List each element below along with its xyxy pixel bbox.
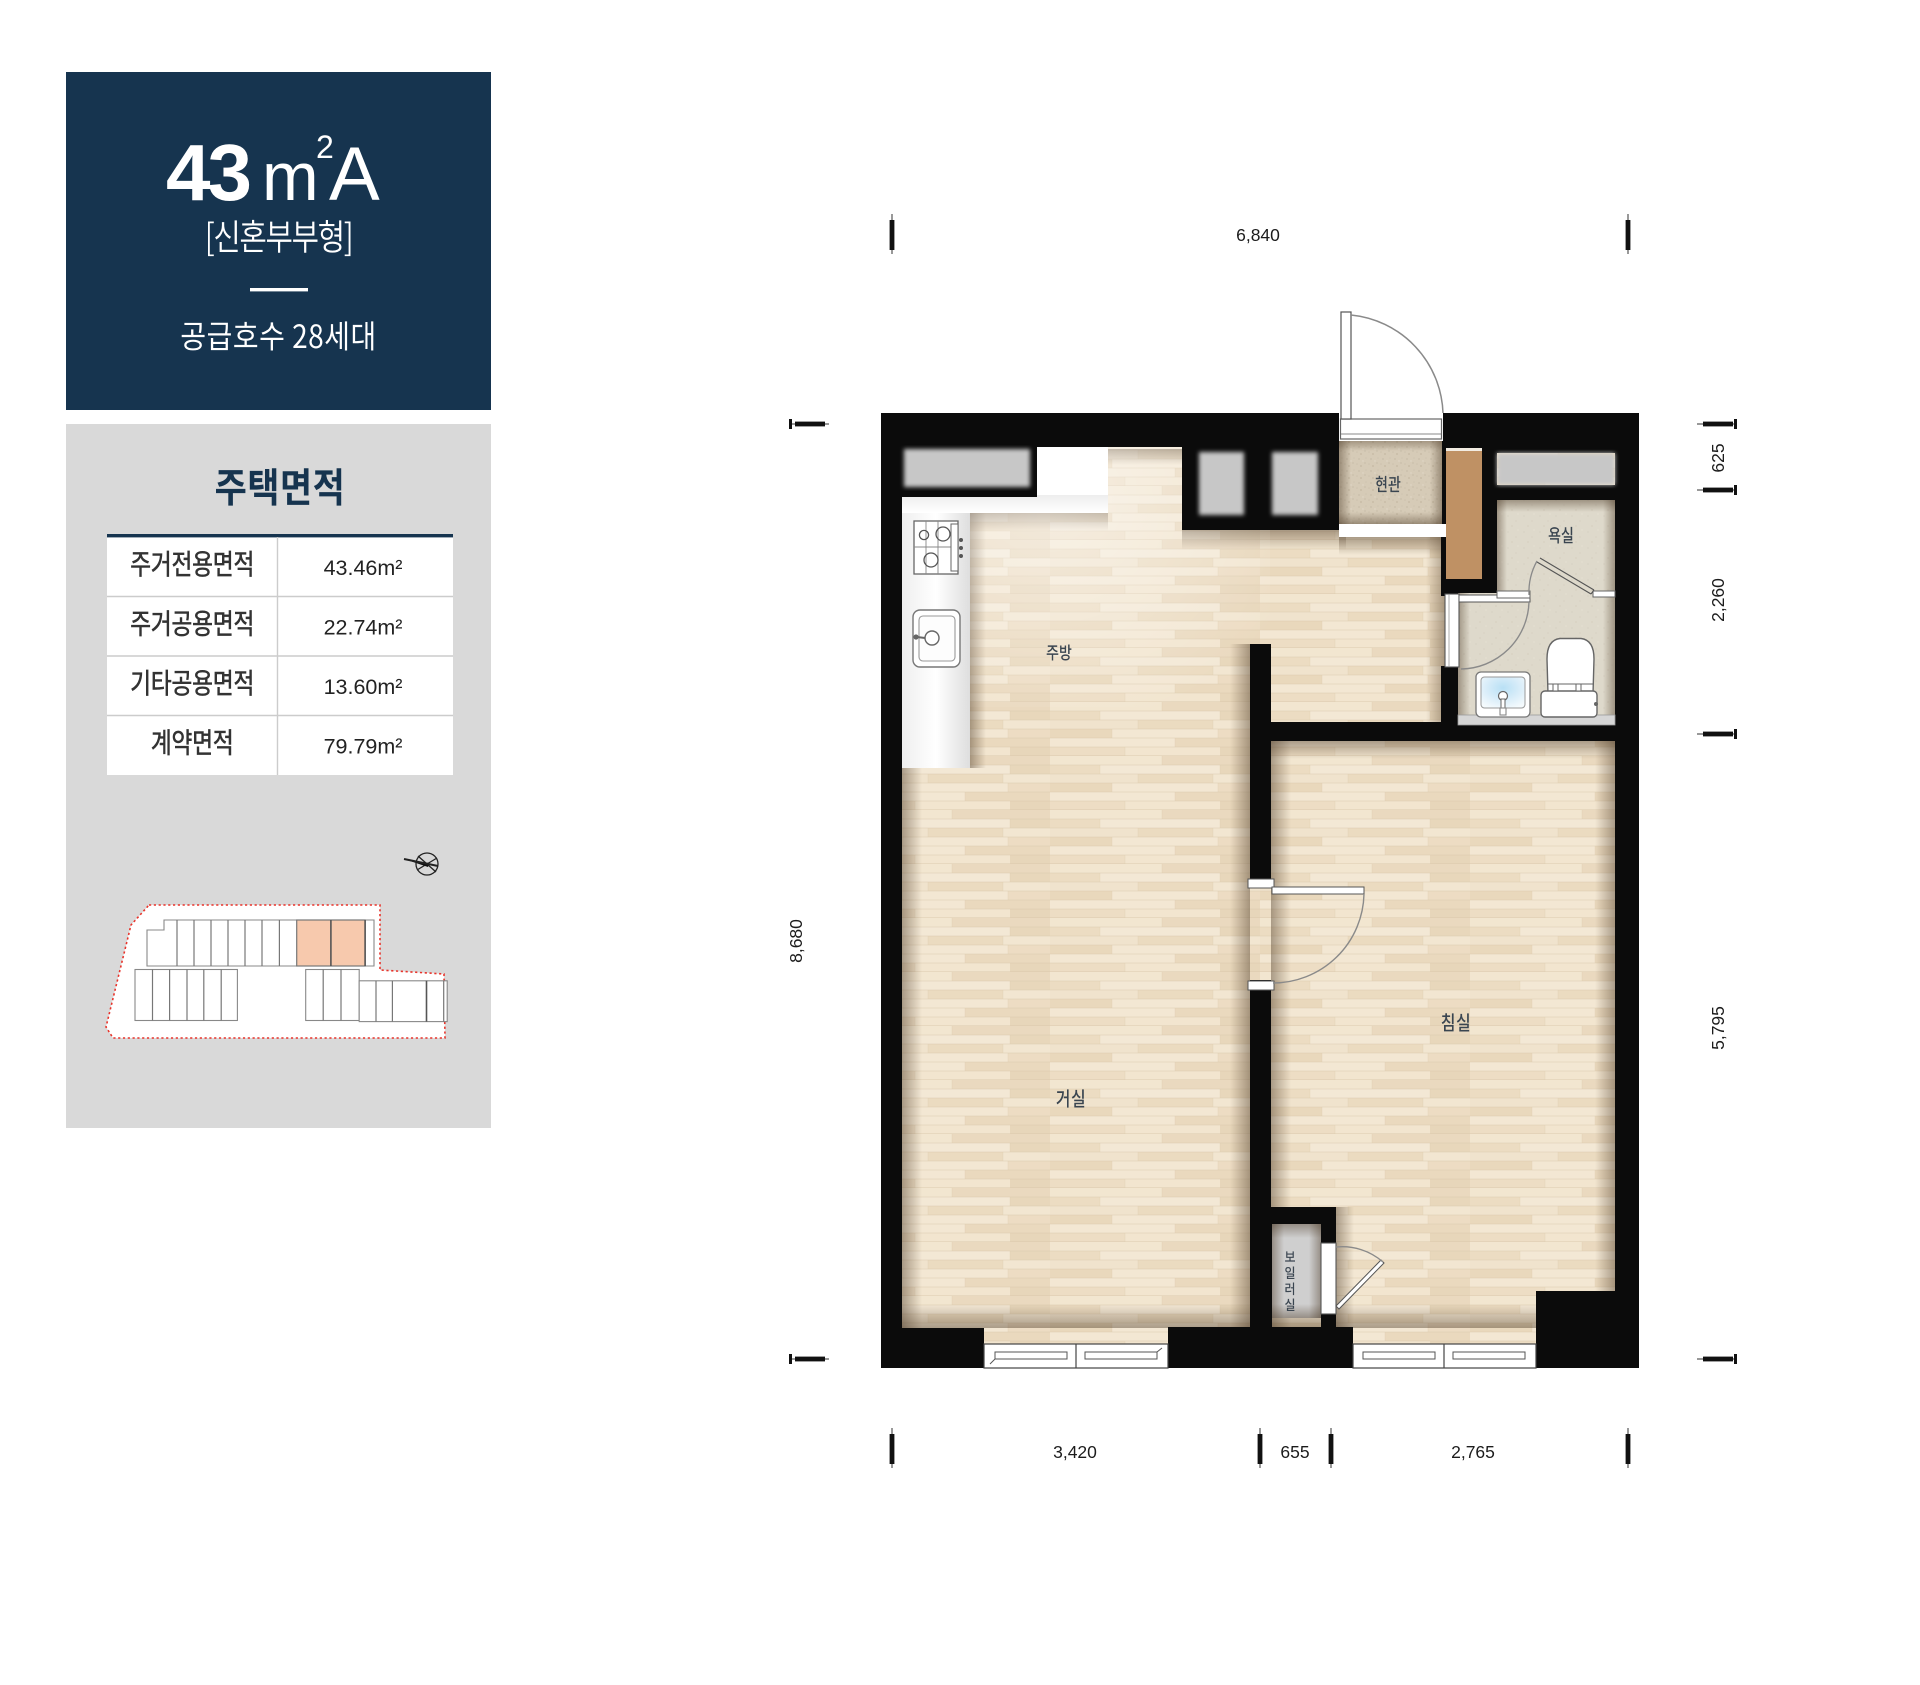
svg-text:22.74m²: 22.74m² — [324, 616, 403, 640]
svg-text:43: 43 — [166, 128, 249, 217]
svg-text:2,260: 2,260 — [1708, 578, 1728, 622]
svg-text:625: 625 — [1708, 443, 1728, 472]
svg-text:5,795: 5,795 — [1708, 1006, 1728, 1050]
svg-text:43.46m²: 43.46m² — [324, 556, 403, 580]
svg-text:79.79m²: 79.79m² — [324, 735, 403, 759]
svg-text:A: A — [329, 132, 380, 217]
svg-text:3,420: 3,420 — [1053, 1442, 1097, 1462]
svg-text:13.60m²: 13.60m² — [324, 675, 403, 699]
svg-text:8,680: 8,680 — [786, 919, 806, 963]
svg-text:6,840: 6,840 — [1236, 225, 1280, 245]
svg-text:655: 655 — [1280, 1442, 1309, 1462]
svg-text:2,765: 2,765 — [1451, 1442, 1495, 1462]
svg-text:m: m — [262, 139, 319, 215]
